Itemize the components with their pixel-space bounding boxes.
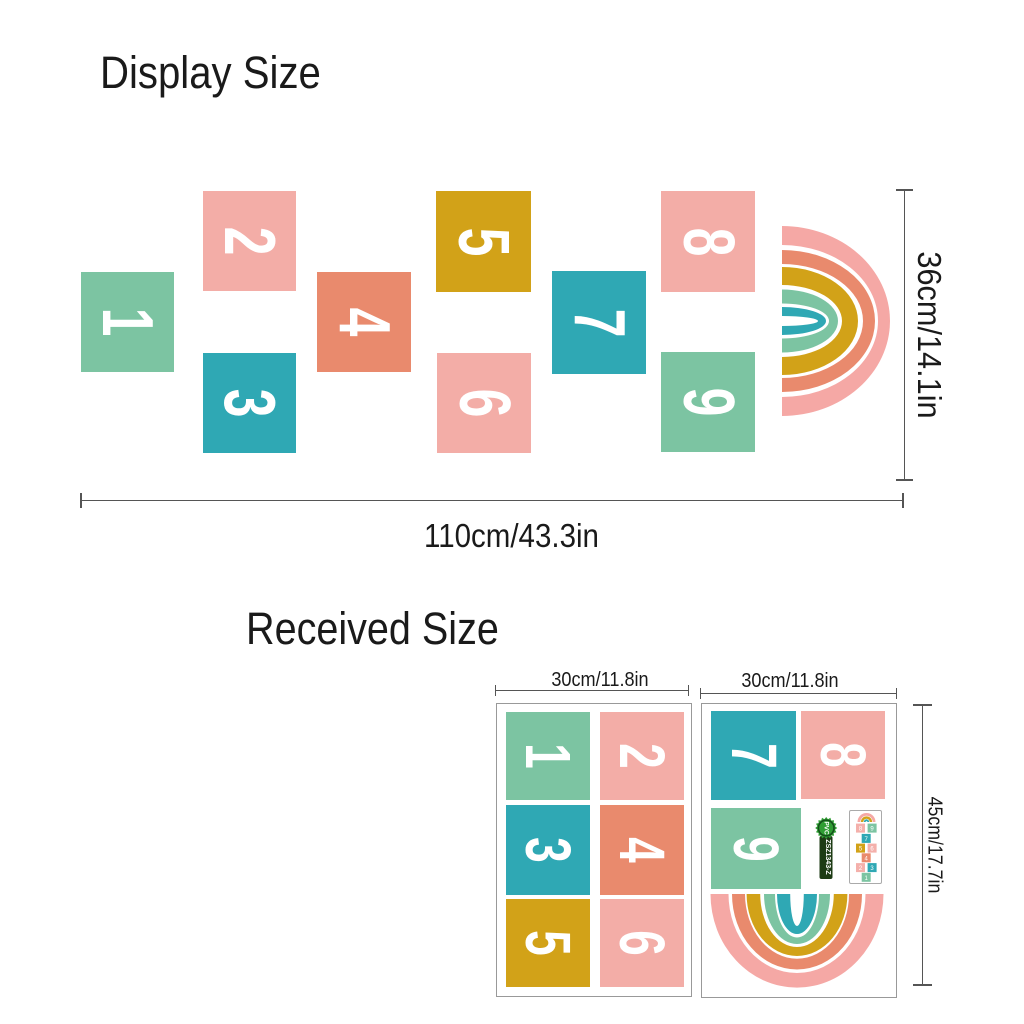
svg-text:ZSZ1343-Z: ZSZ1343-Z	[824, 839, 831, 875]
svg-text:PVC: PVC	[823, 821, 830, 835]
